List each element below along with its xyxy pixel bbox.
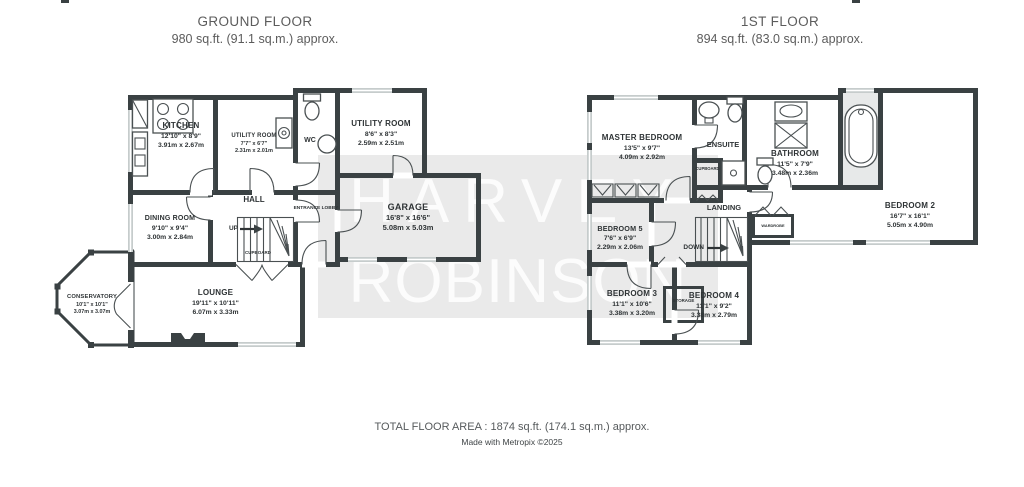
room-dim-imperial: 7'6" x 6'9" [604, 234, 636, 243]
room-label-bedroom-5: BEDROOM 5 7'6" x 6'9" 2.29m x 2.06m [590, 220, 650, 256]
room-dim-metric: 6.07m x 3.33m [192, 308, 238, 317]
label-hall: HALL [214, 193, 294, 206]
room-name: BATHROOM [771, 149, 819, 160]
room-label-lounge: LOUNGE 19'11" x 10'11" 6.07m x 3.33m [133, 275, 298, 330]
room-dim-metric: 2.59m x 2.51m [358, 139, 404, 148]
room-label-master-bedroom: MASTER BEDROOM 13'5" x 9'7" 4.09m x 2.92… [590, 112, 694, 184]
room-name: BEDROOM 2 [885, 201, 935, 212]
room-dim-metric: 2.31m x 2.01m [235, 148, 273, 156]
label-stairs-up: UP [218, 224, 238, 234]
room-dim-metric: 3.38m x 3.20m [609, 309, 655, 318]
room-label-utility-1: UTILITY ROOM 7'7" x 6'7" 2.31m x 2.01m [216, 108, 292, 180]
room-name: BEDROOM 3 [607, 289, 657, 300]
first-floor-title: 1ST FLOOR 894 sq.ft. (83.0 sq.m.) approx… [630, 14, 930, 46]
label-cupboard-gf: CUPBOARD [240, 249, 276, 258]
room-label-kitchen: KITCHEN 12'10" x 8'9" 3.91m x 2.67m [148, 98, 214, 174]
room-dim-imperial: 9'10" x 9'4" [152, 224, 188, 233]
floorplan-page: HARVEY ROBINSON [0, 0, 1024, 487]
label-ensuite: ENSUITE [701, 138, 745, 151]
room-dim-metric: 3.91m x 2.67m [158, 141, 204, 150]
room-dim-metric: 5.08m x 5.03m [383, 223, 434, 233]
label-wc: WC [298, 134, 322, 146]
room-dim-imperial: 12'10" x 8'9" [161, 132, 201, 141]
room-label-bedroom-4: BEDROOM 4 11'1" x 9'2" 3.38m x 2.79m [678, 288, 750, 324]
room-name: GARAGE [388, 201, 429, 213]
ensuite-toilet-icon [727, 97, 743, 122]
kitchen-sink-icon [133, 100, 148, 176]
room-label-conservatory: CONSERVATORY 10'1" x 10'1" 3.07m x 3.07m [56, 288, 128, 322]
label-wardrobe: WARDROBE [753, 222, 793, 230]
bathtub-icon [845, 105, 877, 167]
room-name: CONSERVATORY [67, 294, 117, 302]
room-name: UTILITY ROOM [351, 119, 411, 130]
room-name: KITCHEN [163, 121, 200, 132]
room-dim-imperial: 7'7" x 6'7" [241, 141, 268, 149]
ground-floor-area: 980 sq.ft. (91.1 sq.m.) approx. [105, 32, 405, 46]
label-cupboard-1f: CUPBOARD [693, 165, 722, 174]
room-dim-metric: 3.38m x 2.79m [691, 311, 737, 320]
room-dim-metric: 4.09m x 2.92m [619, 153, 665, 162]
label-storage: STORAGE [664, 297, 703, 306]
room-label-bedroom-2: BEDROOM 2 16'7" x 16'1" 5.05m x 4.90m [848, 190, 972, 242]
total-floor-area: TOTAL FLOOR AREA : 1874 sq.ft. (174.1 sq… [262, 421, 762, 433]
ground-floor-name: GROUND FLOOR [105, 14, 405, 29]
ensuite-shower-icon [722, 161, 745, 185]
room-label-bathroom: BATHROOM 11'5" x 7'9" 3.48m x 2.36m [750, 146, 840, 182]
label-stairs-down: DOWN [676, 243, 704, 253]
room-dim-imperial: 11'1" x 10'6" [612, 300, 652, 309]
room-dim-imperial: 10'1" x 10'1" [76, 302, 108, 309]
room-dim-metric: 3.00m x 2.84m [147, 233, 193, 242]
room-dim-metric: 3.07m x 3.07m [74, 309, 111, 316]
footer: TOTAL FLOOR AREA : 1874 sq.ft. (174.1 sq… [262, 421, 762, 447]
ground-floor-title: GROUND FLOOR 980 sq.ft. (91.1 sq.m.) app… [105, 14, 405, 46]
room-dim-metric: 5.05m x 4.90m [887, 221, 933, 230]
fireplace-icon [171, 333, 205, 346]
room-name: BEDROOM 5 [597, 224, 642, 234]
room-label-garage: GARAGE 16'8" x 16'6" 5.08m x 5.03m [338, 180, 478, 254]
bathroom-shower-icon [775, 123, 807, 148]
room-dim-imperial: 19'11" x 10'11" [192, 299, 239, 308]
room-dim-imperial: 13'5" x 9'7" [624, 144, 660, 153]
room-name: UTILITY ROOM [231, 132, 276, 140]
room-dim-metric: 3.48m x 2.36m [772, 169, 818, 178]
first-floor-name: 1ST FLOOR [630, 14, 930, 29]
roof-marks [61, 0, 860, 3]
wc-toilet-icon [304, 94, 321, 120]
room-label-dining: DINING ROOM 9'10" x 9'4" 3.00m x 2.84m [131, 196, 209, 260]
room-name: MASTER BEDROOM [602, 133, 683, 144]
room-label-bedroom-3: BEDROOM 3 11'1" x 10'6" 3.38m x 3.20m [592, 286, 672, 322]
label-entrance-lobby: ENTRANCE LOBBY [290, 204, 342, 214]
room-dim-imperial: 11'5" x 7'9" [777, 160, 813, 169]
room-label-utility-2: UTILITY ROOM 8'6" x 8'3" 2.59m x 2.51m [338, 95, 424, 173]
room-dim-imperial: 16'8" x 16'6" [386, 213, 430, 223]
room-name: DINING ROOM [145, 214, 195, 223]
bathroom-basin-icon [775, 102, 807, 121]
room-name: LOUNGE [198, 288, 233, 299]
room-dim-imperial: 8'6" x 8'3" [365, 130, 397, 139]
first-floor-area: 894 sq.ft. (83.0 sq.m.) approx. [630, 32, 930, 46]
room-dim-imperial: 16'7" x 16'1" [890, 212, 930, 221]
metropix-credit: Made with Metropix ©2025 [262, 437, 762, 447]
room-dim-metric: 2.29m x 2.06m [597, 243, 643, 252]
label-landing: LANDING [698, 202, 750, 214]
